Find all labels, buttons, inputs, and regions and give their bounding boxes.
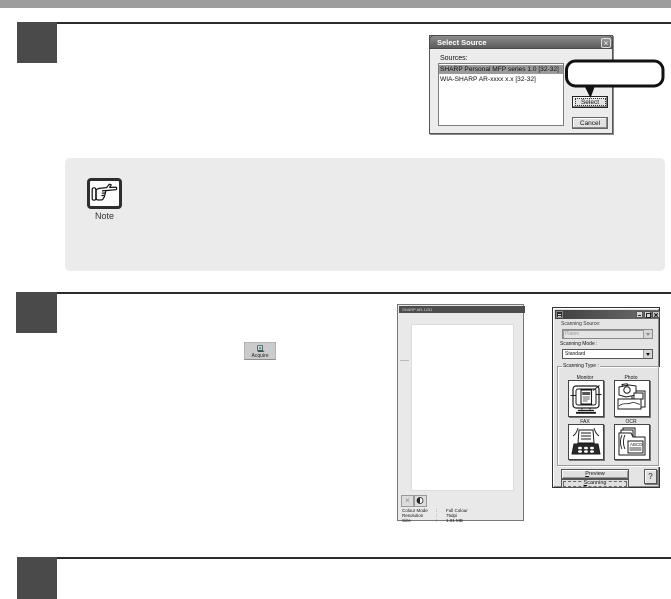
svg-text:ABCD: ABCD (630, 442, 643, 447)
